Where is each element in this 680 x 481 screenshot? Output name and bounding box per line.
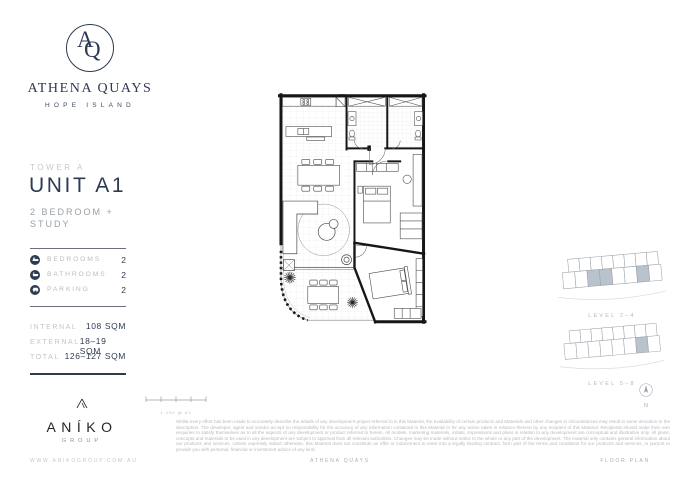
keyplan-level-5-8: LEVEL 5–8 (556, 322, 668, 387)
area-value: 126–127 SQM (65, 351, 126, 361)
dining-area (298, 159, 340, 191)
area-row-total: TOTAL 126–127 SQM (30, 351, 126, 361)
area-value: 108 SQM (86, 321, 126, 331)
feature-label: BATHROOMS (47, 271, 121, 278)
feature-value: 2 (121, 255, 126, 265)
area-label: TOTAL (30, 354, 65, 361)
divider-thick (30, 373, 126, 375)
scale-bar: 1:100 @ A3 (145, 391, 207, 415)
bath-icon (30, 270, 40, 280)
bedroom-1 (356, 163, 398, 223)
keyplan-level-2-4: LEVEL 2–4 (556, 248, 668, 319)
keyplan-drawing (556, 322, 668, 374)
feature-label: BEDROOMS (47, 256, 121, 263)
brand-logo: A Q ATHENA QUAYS HOPE ISLAND (26, 24, 154, 109)
developer-name: ANÍKO (26, 419, 138, 435)
floorplan-drawing (277, 91, 428, 335)
compass-label: N (637, 403, 655, 409)
feature-row-parking: PARKING 2 (30, 284, 126, 295)
scale-bar-ticks (145, 396, 207, 404)
north-arrow-icon (638, 382, 654, 398)
aq-monogram-icon: A Q (66, 24, 114, 72)
area-row-internal: INTERNAL 108 SQM (30, 321, 126, 331)
divider (30, 248, 126, 249)
disclaimer-text: Whilst every effort has been made to acc… (176, 419, 670, 453)
feature-label: PARKING (47, 286, 121, 293)
bedroom-2 (369, 259, 423, 319)
floorplan-brochure-page: A Q ATHENA QUAYS HOPE ISLAND TOWER A UNI… (0, 0, 680, 481)
scale-label: 1:100 @ A3 (145, 410, 207, 415)
feature-value: 2 (121, 285, 126, 295)
car-icon (30, 285, 40, 295)
feature-row-bathrooms: BATHROOMS 2 (30, 269, 126, 280)
compass: N (637, 382, 655, 409)
tower-label: TOWER A (30, 163, 85, 172)
footer-page-type: FLOOR PLAN (600, 458, 650, 464)
developer-group: GROUP (26, 438, 138, 444)
feature-row-bedrooms: BEDROOMS 2 (30, 254, 126, 265)
keyplan-drawing (556, 248, 668, 306)
keyplan-label: LEVEL 2–4 (556, 313, 668, 319)
unit-title: UNIT A1 (29, 174, 126, 198)
area-label: INTERNAL (30, 324, 86, 331)
developer-logo: ANÍKO GROUP (26, 398, 138, 444)
divider (30, 306, 126, 307)
bed-icon (30, 255, 40, 265)
unit-type: 2 BEDROOM + STUDY (30, 206, 130, 230)
aniko-mark-icon (74, 398, 90, 412)
monogram-letter-q: Q (84, 37, 101, 63)
area-label: EXTERNAL (30, 339, 80, 346)
footer-project-name: ATHENA QUAYS (0, 458, 680, 464)
feature-value: 2 (121, 270, 126, 280)
brand-name: ATHENA QUAYS (26, 81, 154, 97)
study-nook (400, 154, 422, 238)
brand-location: HOPE ISLAND (26, 102, 154, 109)
